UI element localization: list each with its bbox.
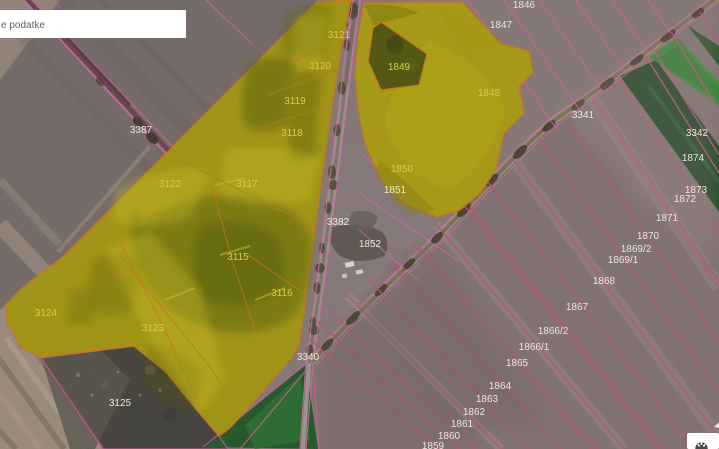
svg-text:1874: 1874 — [682, 153, 705, 164]
svg-text:3382: 3382 — [327, 217, 350, 228]
svg-text:1867: 1867 — [566, 302, 589, 313]
svg-text:1866/2: 1866/2 — [538, 326, 569, 337]
svg-text:e podatke: e podatke — [1, 20, 45, 31]
svg-text:3115: 3115 — [227, 252, 249, 263]
svg-text:3341: 3341 — [572, 110, 595, 121]
svg-text:3120: 3120 — [309, 61, 332, 72]
svg-text:1852: 1852 — [359, 239, 382, 250]
svg-text:3118: 3118 — [281, 128, 303, 139]
svg-text:1859: 1859 — [422, 441, 445, 449]
svg-text:1861: 1861 — [451, 419, 474, 430]
svg-text:1863: 1863 — [476, 394, 499, 405]
svg-text:3125: 3125 — [109, 398, 132, 409]
svg-text:3116: 3116 — [271, 288, 293, 299]
svg-text:1848: 1848 — [478, 88, 501, 99]
svg-text:3122: 3122 — [159, 179, 182, 190]
svg-text:1847: 1847 — [490, 20, 513, 31]
svg-text:3342: 3342 — [686, 128, 709, 139]
svg-text:3117: 3117 — [236, 179, 258, 190]
svg-text:1868: 1868 — [593, 276, 616, 287]
svg-text:1846: 1846 — [513, 0, 536, 11]
svg-text:3121: 3121 — [328, 30, 351, 41]
svg-text:3340: 3340 — [297, 352, 320, 363]
svg-text:1866/1: 1866/1 — [519, 342, 550, 353]
svg-text:3124: 3124 — [35, 308, 58, 319]
svg-text:1864: 1864 — [489, 381, 512, 392]
svg-text:3119: 3119 — [284, 96, 306, 107]
svg-text:1869/2: 1869/2 — [621, 244, 652, 255]
svg-text:3123: 3123 — [142, 323, 165, 334]
svg-text:3387: 3387 — [130, 125, 153, 136]
svg-text:1862: 1862 — [463, 407, 486, 418]
svg-text:1872: 1872 — [674, 194, 697, 205]
svg-text:1865: 1865 — [506, 358, 529, 369]
svg-text:1849: 1849 — [388, 62, 411, 73]
svg-text:1850: 1850 — [391, 164, 414, 175]
svg-text:1851: 1851 — [384, 185, 407, 196]
svg-text:1869/1: 1869/1 — [608, 255, 639, 266]
svg-text:1871: 1871 — [656, 213, 679, 224]
svg-text:1870: 1870 — [637, 231, 660, 242]
